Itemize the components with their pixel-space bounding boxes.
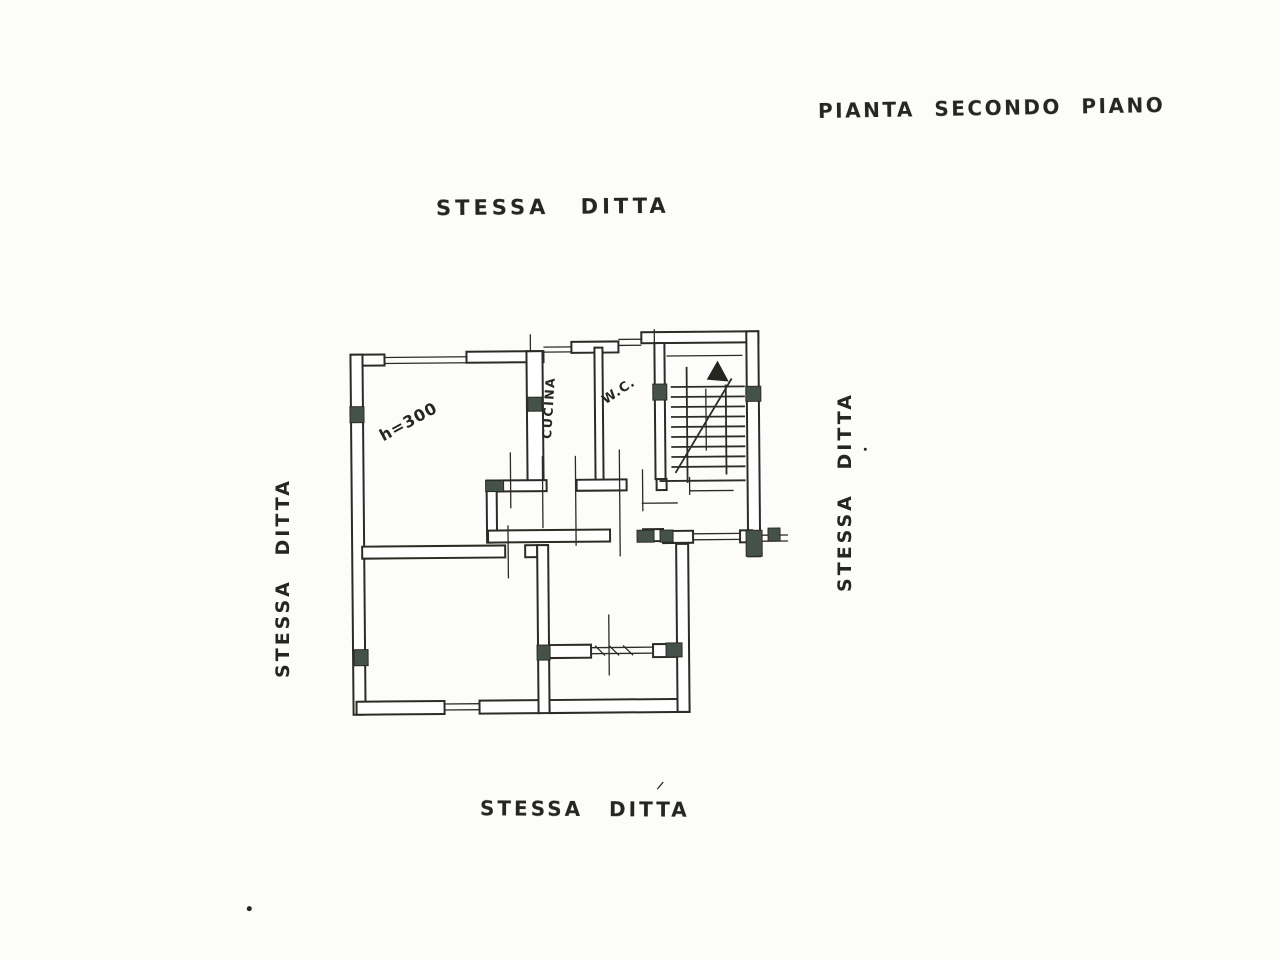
room-label-wc: W.C. xyxy=(599,375,638,408)
scan-marks xyxy=(243,448,871,911)
stair-up-arrow-icon xyxy=(707,360,729,381)
floor-plan-drawing: h=300 CUCINA W.C. xyxy=(0,0,1280,960)
staircase xyxy=(658,355,745,495)
interior-walls xyxy=(360,342,753,714)
scanned-floor-plan-page: PIANTA SECONDO PIANO STESSA DITTA STESSA… xyxy=(0,0,1280,960)
room-label-height: h=300 xyxy=(376,398,441,445)
room-label-kitchen: CUCINA xyxy=(539,376,558,439)
